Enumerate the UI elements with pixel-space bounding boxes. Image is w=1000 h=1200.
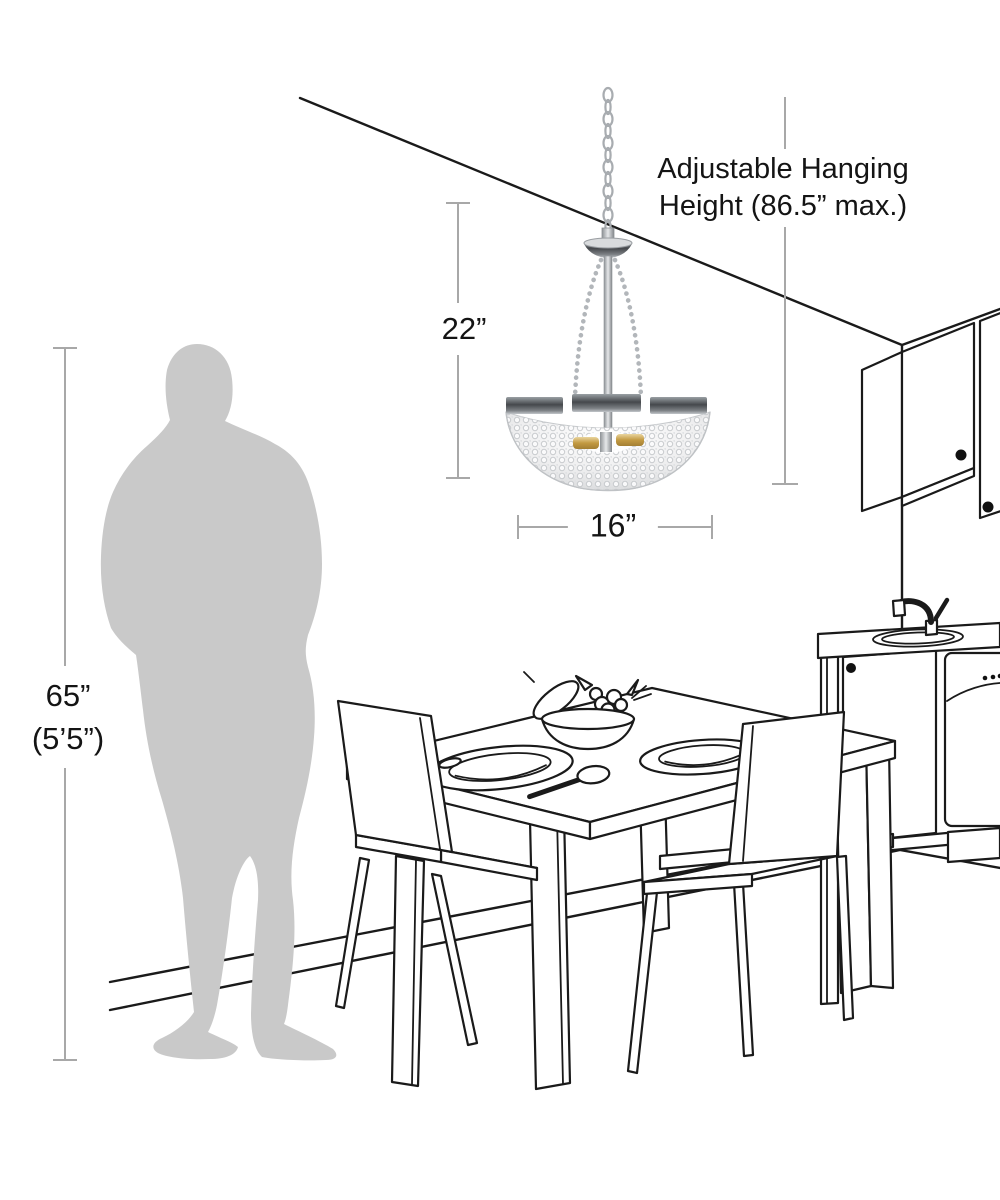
- label-hanging-height-line2: Height (86.5” max.): [657, 188, 909, 225]
- table-leg-front: [530, 813, 570, 1089]
- diagram-canvas: Adjustable Hanging Height (86.5” max.) 2…: [0, 0, 1000, 1200]
- faucet-lever: [936, 600, 947, 618]
- person-silhouette: [101, 344, 336, 1060]
- faucet-head: [893, 600, 905, 616]
- chair-leg: [392, 856, 424, 1086]
- dishwasher-kick-plate: [948, 828, 1000, 862]
- label-hanging-height: Adjustable Hanging Height (86.5” max.): [651, 149, 915, 227]
- bowl-rim: [542, 709, 634, 729]
- label-person-height-inches: 65”: [32, 674, 104, 717]
- label-person-height-feet: (5’5”): [32, 717, 104, 760]
- label-hanging-height-line1: Adjustable Hanging: [657, 151, 909, 188]
- chair-back: [729, 712, 844, 864]
- chandelier-chain: [604, 88, 613, 244]
- label-fixture-height: 22”: [438, 303, 491, 355]
- chair-back: [338, 701, 452, 852]
- upper-cabinets: [862, 307, 1000, 518]
- cabinet-side-panel: [862, 352, 902, 511]
- chair-leg: [733, 866, 753, 1056]
- label-person-height: 65” (5’5”): [30, 666, 106, 768]
- chandelier-band: [506, 394, 707, 414]
- cabinet-knob: [846, 663, 856, 673]
- cabinet-knob: [983, 502, 994, 513]
- cabinet-door-right: [980, 307, 1000, 518]
- cabinet-door-left: [902, 323, 974, 497]
- cabinet-knob: [956, 450, 967, 461]
- label-fixture-width: 16”: [568, 506, 658, 547]
- chair-leg: [432, 874, 477, 1045]
- dishwasher: [945, 653, 1000, 826]
